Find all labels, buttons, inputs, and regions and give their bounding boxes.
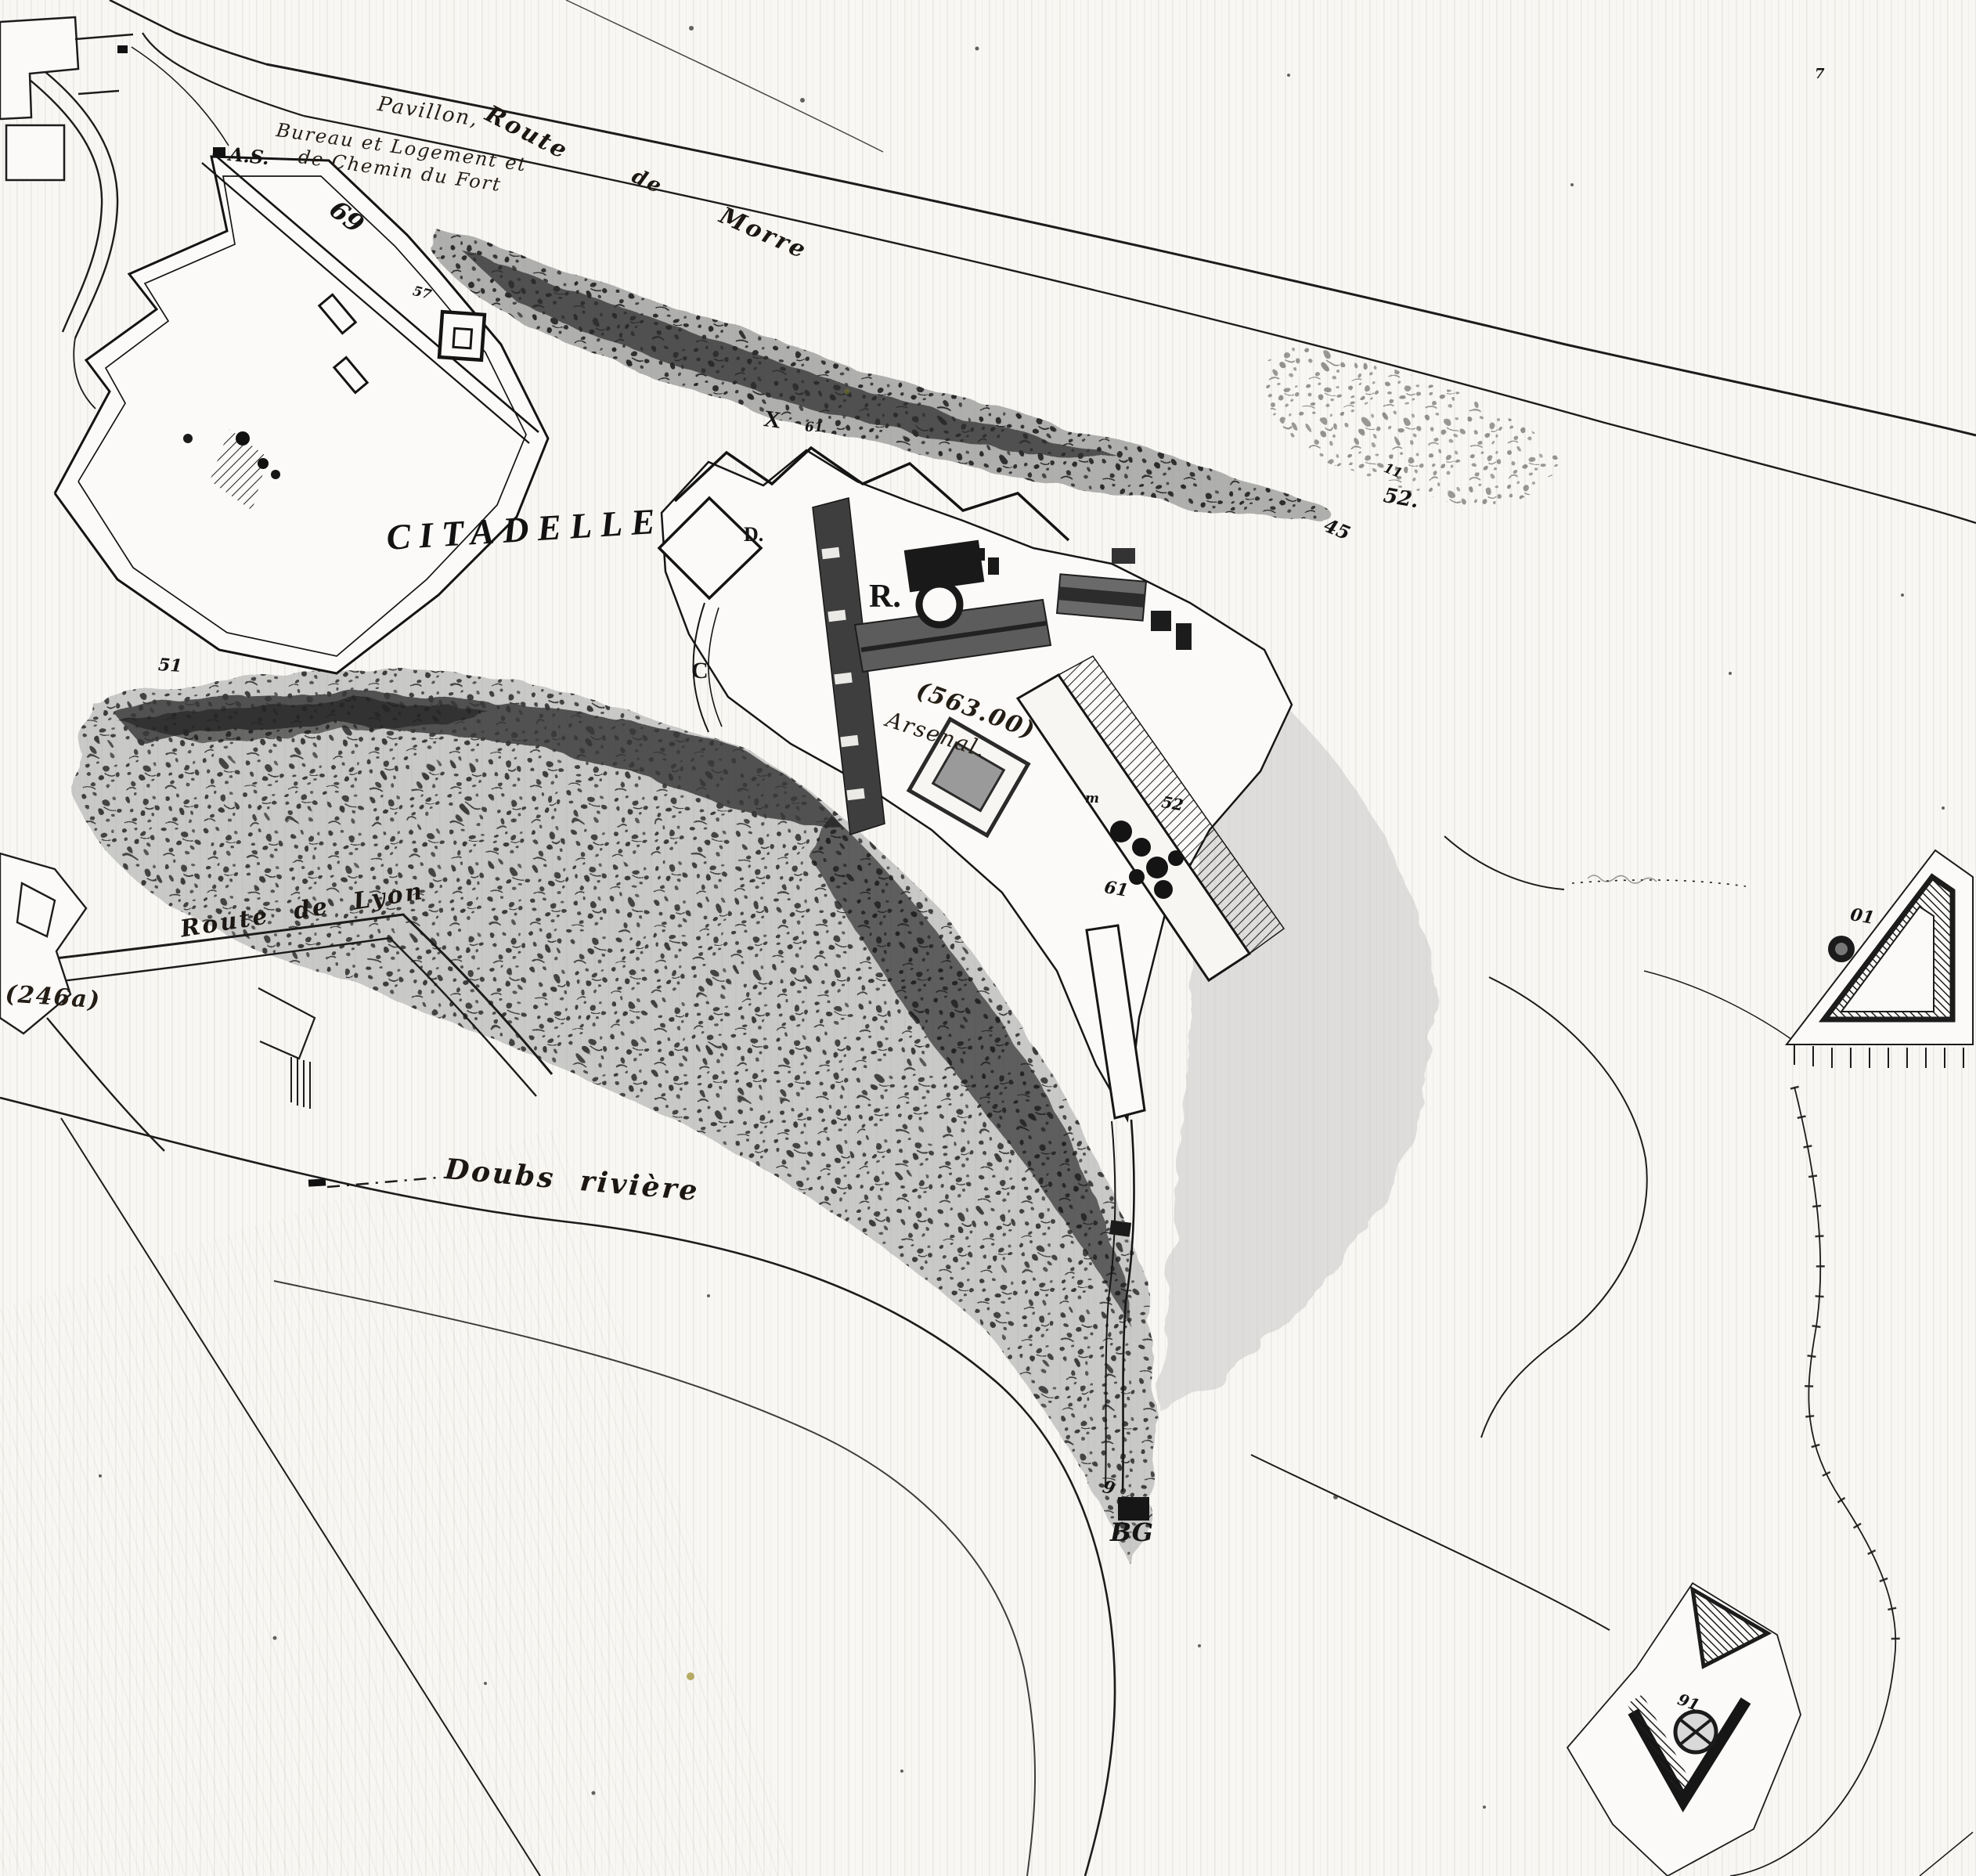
marker-x61: 61	[805, 420, 824, 435]
marker-7: 7	[1815, 66, 1825, 82]
marker-52-gate: 52	[1160, 792, 1185, 814]
marker-bg: BG	[1110, 1517, 1153, 1547]
marker-61-gate: 61	[1102, 877, 1130, 901]
redoubt-square	[439, 312, 485, 360]
yellow-speck	[687, 1672, 694, 1680]
marker-51: 51	[157, 655, 182, 676]
marker-01: 01	[1848, 904, 1876, 929]
marker-as: A.S.	[228, 143, 271, 169]
marker-r: R.	[869, 578, 901, 615]
boat-icon	[308, 1178, 326, 1186]
building-marker-icon	[213, 147, 225, 157]
marker-x: X	[762, 406, 782, 435]
marker-d: D.	[744, 523, 763, 547]
building-marker-icon	[117, 45, 128, 53]
marker-m: m	[1085, 791, 1099, 806]
map-drawing	[0, 0, 1976, 1876]
yellow-speck	[845, 389, 850, 395]
historical-fortification-map: Pavillon, Bureau et Logement et de Chemi…	[0, 0, 1976, 1876]
marker-c: C	[691, 658, 709, 684]
